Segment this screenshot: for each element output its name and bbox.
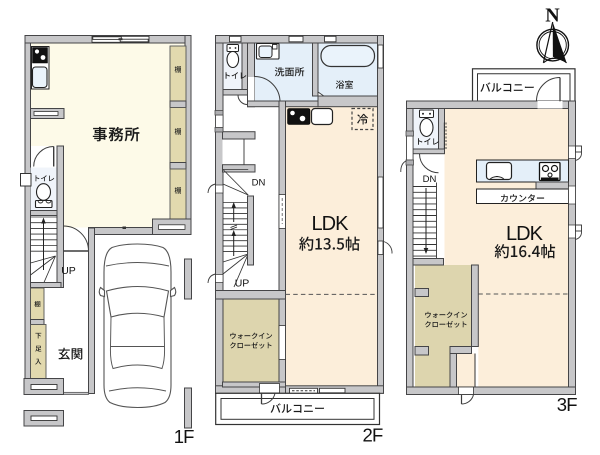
svg-text:UP: UP [61,265,76,277]
svg-text:LDK: LDK [506,223,544,245]
svg-text:3F: 3F [557,394,577,415]
svg-text:1F: 1F [174,426,194,447]
svg-text:UP: UP [235,278,250,290]
svg-text:DN: DN [423,174,437,185]
svg-text:2F: 2F [363,425,383,446]
svg-text:LDK: LDK [312,213,350,235]
svg-text:DN: DN [252,178,266,189]
